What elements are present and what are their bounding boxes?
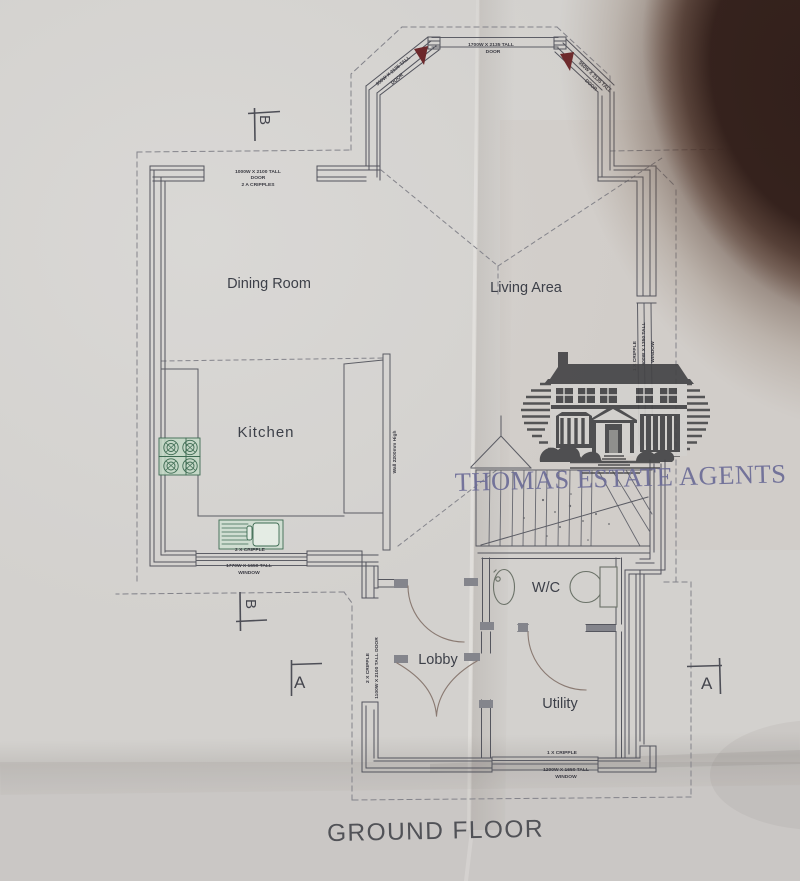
svg-text:1700W X 2135 TALL: 1700W X 2135 TALL: [468, 42, 514, 48]
svg-text:A: A: [701, 674, 713, 693]
svg-text:Dining Room: Dining Room: [227, 276, 311, 292]
svg-text:1 X CRIPPLE: 1 X CRIPPLE: [547, 750, 578, 756]
svg-text:Living Area: Living Area: [490, 280, 563, 296]
svg-text:WINDOW: WINDOW: [238, 570, 260, 576]
svg-text:B: B: [256, 115, 273, 125]
svg-text:1100W X 2100 TALL DOOR: 1100W X 2100 TALL DOOR: [374, 637, 380, 699]
svg-text:GROUND FLOOR: GROUND FLOOR: [327, 816, 544, 848]
svg-text:1000W X 2100 TALL: 1000W X 2100 TALL: [235, 169, 281, 175]
svg-text:WINDOW: WINDOW: [650, 341, 656, 363]
svg-text:2 A CRIPPLES: 2 A CRIPPLES: [241, 182, 275, 188]
svg-text:2 X CRIPPLE: 2 X CRIPPLE: [235, 547, 266, 553]
svg-text:1200W X 1650 TALL: 1200W X 1650 TALL: [543, 767, 589, 773]
svg-text:Wall 2200mm High: Wall 2200mm High: [392, 430, 398, 473]
svg-text:DOOR: DOOR: [486, 49, 501, 55]
svg-text:WINDOW: WINDOW: [555, 774, 577, 780]
svg-text:DOOR: DOOR: [251, 175, 266, 181]
svg-text:1770W X 1650 TALL: 1770W X 1650 TALL: [226, 563, 272, 569]
svg-text:Utility: Utility: [542, 696, 578, 712]
svg-text:W/C: W/C: [532, 580, 560, 596]
svg-text:B: B: [242, 599, 259, 609]
svg-text:Lobby: Lobby: [418, 652, 458, 668]
svg-text:2 X CRIPPLE: 2 X CRIPPLE: [365, 652, 371, 683]
svg-text:Kitchen: Kitchen: [237, 424, 294, 441]
svg-text:A: A: [294, 673, 306, 692]
svg-text:900W X 1350 TALL: 900W X 1350 TALL: [641, 322, 647, 365]
